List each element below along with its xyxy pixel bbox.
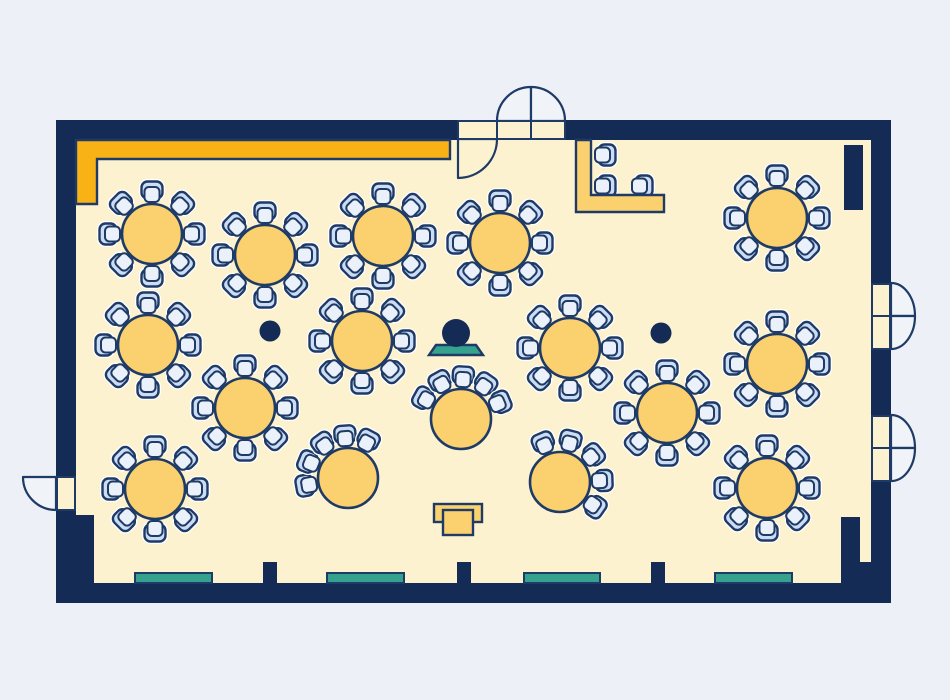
chair: [657, 361, 678, 382]
chair-seat: [720, 481, 735, 496]
chair-seat: [415, 229, 430, 244]
chair-seat: [532, 236, 547, 251]
chair-seat: [376, 189, 391, 204]
chair: [277, 398, 298, 419]
chair-seat: [218, 248, 233, 263]
chair: [184, 224, 205, 245]
window-4: [715, 573, 792, 583]
chair-seat: [355, 373, 370, 388]
chair-seat: [105, 227, 120, 242]
chair-seat: [592, 473, 608, 489]
chair: [448, 233, 469, 254]
round-table-2-top: [235, 225, 295, 285]
chair: [352, 373, 373, 394]
chair: [142, 182, 163, 203]
chair: [334, 425, 356, 447]
chair-seat: [770, 171, 785, 186]
chair-seat: [760, 441, 775, 456]
column-1: [260, 321, 281, 342]
chair: [809, 208, 830, 229]
chair: [373, 268, 394, 289]
speaker-figure: [442, 319, 470, 347]
chair: [255, 203, 276, 224]
chair-seat: [455, 372, 471, 388]
chair: [142, 266, 163, 287]
round-table-6-top: [118, 315, 178, 375]
chair: [255, 287, 276, 308]
chair-seat: [355, 294, 370, 309]
chair-seat: [148, 521, 163, 536]
chair: [187, 479, 208, 500]
chair-seat: [238, 361, 253, 376]
door-top-double-leaf-1: [497, 121, 531, 139]
corner-block-bottom-left: [76, 515, 94, 583]
chair-seat: [108, 482, 123, 497]
window-3: [524, 573, 600, 583]
chair: [767, 166, 788, 187]
round-table-10-top: [215, 378, 275, 438]
chair: [632, 176, 653, 197]
round-table-7-top: [332, 311, 392, 371]
round-table-11: [615, 361, 720, 466]
chair: [235, 356, 256, 377]
round-table-2: [213, 203, 318, 308]
chair-seat: [523, 341, 538, 356]
chair-seat: [258, 287, 273, 302]
chair: [757, 436, 778, 457]
round-table-13-top: [737, 458, 797, 518]
round-table-1-top: [122, 204, 182, 264]
chair-seat: [180, 338, 195, 353]
floor-plan-canvas: [0, 0, 950, 700]
chair: [715, 478, 736, 499]
chair-seat: [145, 266, 160, 281]
chair: [103, 479, 124, 500]
chair: [592, 470, 613, 492]
chair-seat: [258, 208, 273, 223]
chair: [394, 331, 415, 352]
round-table-3: [331, 184, 436, 289]
chair-seat: [145, 187, 160, 202]
chair: [595, 145, 616, 166]
crescent-table-2-top: [431, 389, 491, 449]
chair-seat: [141, 377, 156, 392]
chair-seat: [394, 334, 409, 349]
chair: [452, 366, 474, 388]
chair-seat: [770, 317, 785, 332]
chair-seat: [730, 211, 745, 226]
chair-seat: [770, 250, 785, 265]
chair-seat: [602, 341, 617, 356]
round-table-3-top: [353, 206, 413, 266]
door-left-single-leaf-1: [57, 477, 75, 510]
chair: [235, 440, 256, 461]
chair: [145, 521, 166, 542]
chair-seat: [336, 229, 351, 244]
chair-seat: [493, 196, 508, 211]
wall-stub-3: [651, 562, 665, 583]
chair-seat: [660, 366, 675, 381]
chair-seat: [493, 275, 508, 290]
chair: [138, 293, 159, 314]
chair: [699, 403, 720, 424]
round-table-6: [96, 293, 201, 398]
chair-seat: [563, 301, 578, 316]
floor-plan-svg: [0, 0, 950, 700]
chair: [415, 226, 436, 247]
round-table-13: [715, 436, 820, 541]
chair-seat: [238, 440, 253, 455]
chair-seat: [632, 179, 647, 194]
service-table-front: [443, 510, 473, 535]
chair-seat: [563, 380, 578, 395]
door-right-lower-double-leaf-2: [872, 448, 890, 481]
chair-seat: [660, 445, 675, 460]
chair: [595, 176, 616, 197]
pilaster-top-right: [844, 145, 863, 210]
chair-seat: [337, 431, 353, 447]
chair: [297, 245, 318, 266]
chair: [193, 398, 214, 419]
chair: [180, 335, 201, 356]
chair-seat: [187, 482, 202, 497]
round-table-7: [310, 289, 415, 394]
column-2: [651, 323, 672, 344]
chair-seat: [595, 148, 610, 163]
chair: [213, 245, 234, 266]
chair-seat: [315, 334, 330, 349]
round-table-1: [100, 182, 205, 287]
corner-block-bottom-right-2: [860, 562, 871, 583]
round-table-10: [193, 356, 298, 461]
chair-seat: [809, 357, 824, 372]
chair: [757, 520, 778, 541]
chair: [560, 296, 581, 317]
chair-seat: [300, 476, 317, 493]
wall-stub-1: [263, 562, 277, 583]
chair: [657, 445, 678, 466]
chair: [490, 275, 511, 296]
chair: [809, 354, 830, 375]
chair: [725, 208, 746, 229]
chair: [518, 338, 539, 359]
chair: [100, 224, 121, 245]
door-right-upper-double-leaf-2: [872, 316, 890, 349]
chair: [96, 335, 117, 356]
chair: [560, 380, 581, 401]
chair-seat: [560, 435, 578, 453]
chair: [799, 478, 820, 499]
chair: [767, 396, 788, 417]
chair: [767, 312, 788, 333]
chair-seat: [184, 227, 199, 242]
chair: [373, 184, 394, 205]
round-table-8: [518, 296, 623, 401]
round-table-4: [448, 191, 553, 296]
chair: [310, 331, 331, 352]
chair-seat: [453, 236, 468, 251]
wall-stub-2: [457, 562, 471, 583]
chair-seat: [141, 298, 156, 313]
chair-seat: [277, 401, 292, 416]
chair: [602, 338, 623, 359]
round-table-4-top: [470, 213, 530, 273]
chair: [145, 437, 166, 458]
round-table-9-top: [747, 334, 807, 394]
chair: [352, 289, 373, 310]
chair-seat: [760, 520, 775, 535]
chair: [138, 377, 159, 398]
window-1: [135, 573, 212, 583]
chair: [725, 354, 746, 375]
chair-seat: [101, 338, 116, 353]
door-top-single-leaf-1: [458, 121, 497, 139]
chair-seat: [297, 248, 312, 263]
chair-seat: [620, 406, 635, 421]
round-table-11-top: [637, 383, 697, 443]
door-right-lower-double-leaf-1: [872, 416, 890, 448]
chair: [331, 226, 352, 247]
round-table-8-top: [540, 318, 600, 378]
chair-seat: [799, 481, 814, 496]
round-table-9: [725, 312, 830, 417]
corner-block-bottom-right: [841, 517, 860, 583]
chair-seat: [198, 401, 213, 416]
chair-seat: [770, 396, 785, 411]
chair-seat: [595, 179, 610, 194]
round-table-5: [725, 166, 830, 271]
chair: [490, 191, 511, 212]
chair: [532, 233, 553, 254]
window-2: [327, 573, 404, 583]
round-table-12: [103, 437, 208, 542]
chair-seat: [376, 268, 391, 283]
chair-seat: [809, 211, 824, 226]
round-table-12-top: [125, 459, 185, 519]
chair-seat: [148, 442, 163, 457]
chair-seat: [730, 357, 745, 372]
round-table-5-top: [747, 188, 807, 248]
chair: [767, 250, 788, 271]
chair-seat: [699, 406, 714, 421]
door-right-upper-double-leaf-1: [872, 284, 890, 316]
door-top-double-leaf-2: [531, 121, 565, 139]
crescent-table-1-top: [318, 448, 378, 508]
chair: [615, 403, 636, 424]
crescent-table-3-top: [530, 452, 590, 512]
